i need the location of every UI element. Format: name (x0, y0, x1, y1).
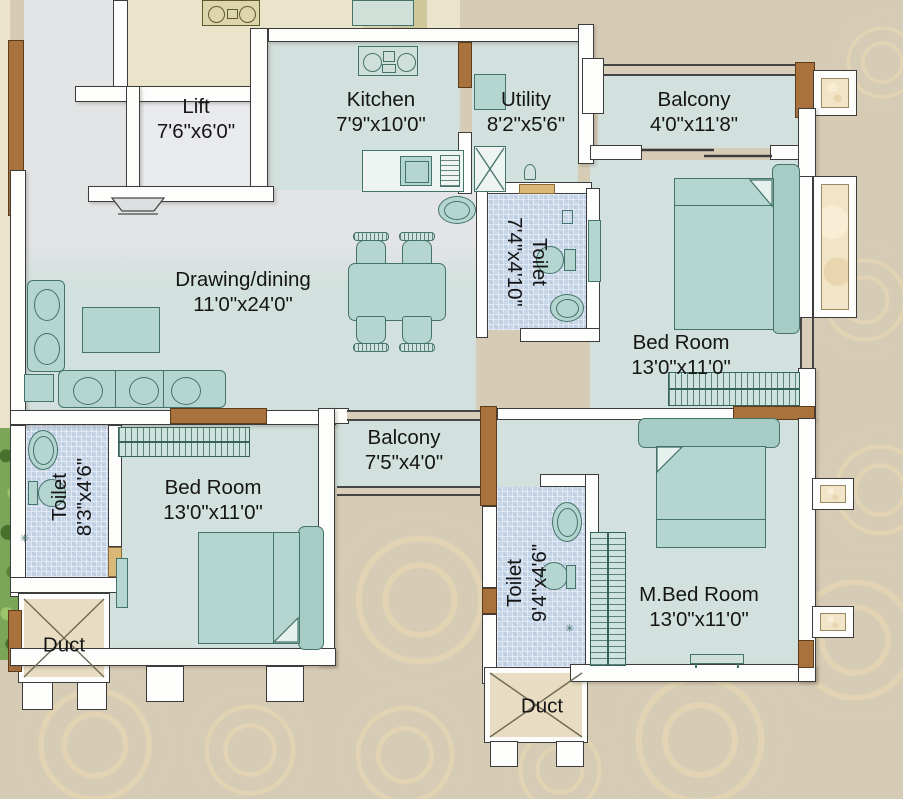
window-bay-inner (820, 485, 846, 503)
column (490, 741, 518, 767)
room-name: Toilet (47, 458, 72, 536)
column (77, 682, 107, 710)
tap-icon (524, 164, 536, 180)
room-dims: 7'4"x4'10" (502, 217, 527, 307)
wall (520, 328, 600, 342)
toilet-cistern (28, 481, 38, 505)
room-name: Bed Room (631, 330, 731, 355)
room-dims: 7'6"x6'0" (157, 119, 235, 144)
window-bay-inner (821, 184, 849, 310)
wood-wall (798, 640, 814, 668)
column (22, 682, 53, 710)
room-name: Balcony (650, 87, 738, 112)
tv-unit (170, 408, 267, 424)
room-label-drawing-dining: Drawing/dining 11'0"x24'0" (175, 267, 311, 317)
room-label-bedroom-right: Bed Room 13'0"x11'0" (631, 330, 731, 380)
wood-wall (482, 588, 497, 614)
sofa (58, 370, 226, 408)
room-label-toilet-3: Toilet 9'4"x4'6" (502, 544, 552, 622)
dining-chair (402, 316, 432, 344)
room-label-toilet-2: Toilet 8'3"x4'6" (47, 458, 97, 536)
room-name: Utility (487, 87, 565, 112)
wood-wall (480, 406, 497, 506)
coffee-table (82, 307, 160, 353)
column (556, 741, 584, 767)
shower-icon: ✳ (565, 622, 574, 635)
room-label-balcony-middle: Balcony 7'5"x4'0" (365, 425, 443, 475)
window-bay-inner (821, 78, 849, 108)
room-dims: 4'0"x11'8" (650, 112, 738, 137)
dining-chair (356, 316, 386, 344)
wall (798, 108, 816, 182)
wall (10, 425, 26, 597)
dining-table (348, 263, 446, 321)
column (146, 666, 184, 702)
bed (674, 178, 774, 330)
room-label-toilet-1: Toilet 7'4"x4'10" (502, 217, 552, 307)
wall (126, 86, 140, 202)
room-label-bedroom-left: Bed Room 13'0"x11'0" (163, 475, 263, 525)
sofa (27, 280, 65, 372)
wash-area (474, 146, 506, 192)
dining-chair (353, 343, 389, 352)
kitchen-sink (400, 156, 432, 186)
room-name: Kitchen (336, 87, 426, 112)
bed-headboard (298, 526, 324, 650)
bedside-table (116, 558, 128, 608)
room-label-lift: Lift 7'6"x6'0" (157, 94, 235, 144)
bed-headboard (772, 164, 800, 334)
room-name: Duct (521, 694, 563, 719)
wardrobe (590, 532, 626, 666)
room-label-utility: Utility 8'2"x5'6" (487, 87, 565, 137)
bed-headboard (638, 418, 780, 448)
bed (198, 532, 300, 644)
room-name: Duct (43, 633, 85, 658)
wall (798, 176, 813, 318)
room-name: Toilet (527, 217, 552, 307)
toilet-cistern (564, 249, 576, 271)
neighbor-counter (352, 0, 414, 26)
side-table (24, 374, 54, 402)
wall (570, 664, 816, 682)
toilet-basin (550, 294, 584, 322)
shelf (588, 220, 601, 282)
toilet-door-sill (519, 184, 555, 194)
room-dims: 7'5"x4'0" (365, 450, 443, 475)
dining-chair (399, 343, 435, 352)
room-dims: 11'0"x24'0" (175, 292, 311, 317)
wash-basin (438, 196, 476, 224)
room-dims: 7'9"x10'0" (336, 112, 426, 137)
wall (10, 577, 122, 593)
room-name: Bed Room (163, 475, 263, 500)
room-dims: 8'2"x5'6" (487, 112, 565, 137)
room-label-duct-2: Duct (521, 694, 563, 719)
floor-plan: ✳ ✳ Lift 7'6"x6'0" Kitchen 7' (0, 0, 903, 799)
window-bay-inner (820, 613, 846, 631)
wall (113, 0, 128, 90)
room-dims: 13'0"x11'0" (163, 500, 263, 525)
swirl-ornament (340, 690, 470, 799)
dresser (690, 654, 744, 664)
toilet-basin (552, 502, 582, 542)
balcony-railing (337, 486, 484, 496)
wall (590, 145, 642, 160)
room-label-balcony-top: Balcony 4'0"x11'8" (650, 87, 738, 137)
wall (540, 474, 590, 487)
room-name: Drawing/dining (175, 267, 311, 292)
bed (656, 446, 766, 548)
wall (88, 186, 274, 202)
stove-icon (202, 0, 260, 26)
column (266, 666, 304, 702)
room-name: Toilet (502, 544, 527, 622)
stove-icon (358, 46, 418, 76)
drainboard (440, 155, 460, 187)
wall (476, 188, 488, 338)
room-dims: 13'0"x11'0" (631, 355, 731, 380)
wall (582, 58, 604, 114)
room-label-master-bedroom: M.Bed Room 13'0"x11'0" (639, 582, 759, 632)
wardrobe (118, 427, 250, 457)
room-dims: 13'0"x11'0" (639, 607, 759, 632)
room-name: Lift (157, 94, 235, 119)
wall (482, 506, 497, 588)
room-name: Balcony (365, 425, 443, 450)
balcony-railing (598, 64, 798, 76)
room-name: M.Bed Room (639, 582, 759, 607)
toilet-cistern (566, 565, 576, 589)
swirl-ornament (190, 690, 310, 799)
room-dims: 8'3"x4'6" (72, 458, 97, 536)
kitchen-door (458, 42, 472, 88)
wall (268, 28, 580, 42)
shower-icon: ✳ (20, 532, 29, 545)
balcony-window (347, 410, 480, 421)
room-label-duct-1: Duct (43, 633, 85, 658)
paper-holder-icon (562, 210, 573, 224)
window-railing (800, 318, 814, 370)
swirl-ornament (335, 515, 505, 685)
room-dims: 9'4"x4'6" (527, 544, 552, 622)
room-label-kitchen: Kitchen 7'9"x10'0" (336, 87, 426, 137)
wall (250, 28, 268, 192)
